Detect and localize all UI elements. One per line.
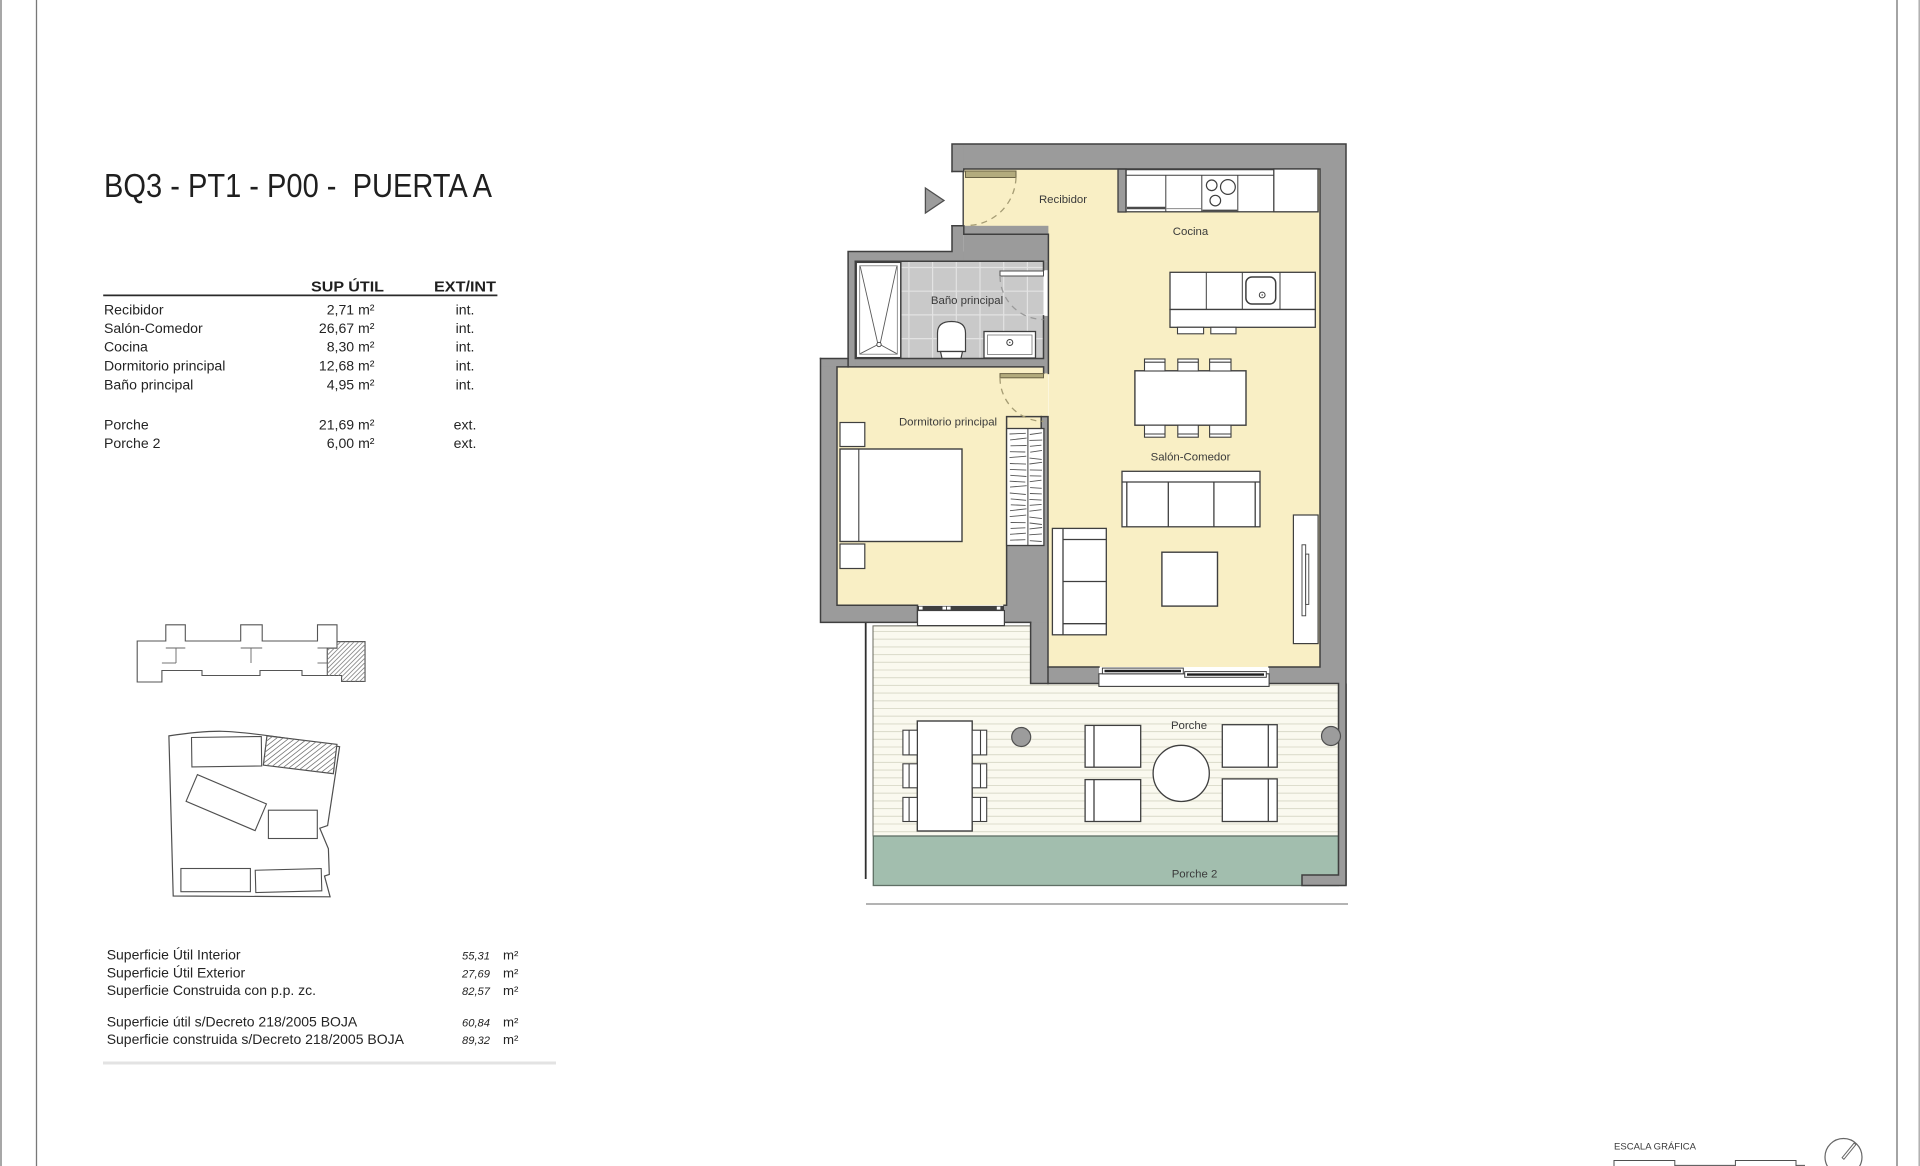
svg-text:Baño principal: Baño principal: [931, 295, 1003, 307]
svg-text:ext.: ext.: [454, 416, 477, 432]
svg-text:Porche 2: Porche 2: [1172, 869, 1218, 881]
svg-text:4,95 m²: 4,95 m²: [327, 376, 375, 392]
svg-text:Recibidor: Recibidor: [104, 301, 164, 317]
svg-text:m²: m²: [503, 983, 519, 998]
svg-text:Superficie útil s/Decreto 218/: Superficie útil s/Decreto 218/2005 BOJA: [107, 1013, 358, 1029]
svg-text:Superficie Útil Exterior: Superficie Útil Exterior: [107, 965, 246, 981]
svg-text:m²: m²: [503, 966, 519, 981]
svg-text:Dormitorio principal: Dormitorio principal: [899, 417, 997, 429]
svg-text:m²: m²: [503, 948, 519, 963]
svg-text:2,71 m²: 2,71 m²: [327, 301, 375, 317]
svg-text:Cocina: Cocina: [1173, 226, 1209, 238]
svg-text:Baño principal: Baño principal: [104, 376, 193, 392]
svg-text:Salón-Comedor: Salón-Comedor: [104, 320, 203, 336]
svg-text:int.: int.: [456, 376, 475, 392]
svg-text:Porche: Porche: [1171, 720, 1207, 732]
svg-text:27,69: 27,69: [461, 969, 490, 981]
svg-text:ext.: ext.: [454, 435, 477, 451]
svg-text:EXT/INT: EXT/INT: [434, 280, 496, 296]
svg-text:int.: int.: [456, 301, 475, 317]
svg-text:89,32: 89,32: [462, 1035, 491, 1047]
svg-text:12,68 m²: 12,68 m²: [319, 358, 375, 374]
svg-text:21,69 m²: 21,69 m²: [319, 416, 375, 432]
svg-text:ESCALA GRÁFICA: ESCALA GRÁFICA: [1614, 1141, 1697, 1152]
svg-text:26,67 m²: 26,67 m²: [319, 320, 375, 336]
svg-text:m²: m²: [503, 1014, 519, 1029]
svg-text:Dormitorio principal: Dormitorio principal: [104, 358, 225, 374]
svg-text:55,31: 55,31: [462, 951, 490, 963]
svg-text:82,57: 82,57: [462, 986, 491, 998]
svg-text:6,00 m²: 6,00 m²: [327, 435, 375, 451]
svg-text:Superficie Construida con p.p.: Superficie Construida con p.p. zc.: [107, 982, 316, 998]
svg-text:int.: int.: [456, 339, 475, 355]
svg-text:Cocina: Cocina: [104, 339, 148, 355]
svg-text:8,30 m²: 8,30 m²: [327, 339, 375, 355]
svg-text:int.: int.: [456, 320, 475, 336]
svg-text:m²: m²: [503, 1032, 519, 1047]
svg-text:Porche: Porche: [104, 416, 149, 432]
svg-text:Superficie Útil Interior: Superficie Útil Interior: [107, 947, 241, 963]
svg-text:Salón-Comedor: Salón-Comedor: [1151, 452, 1231, 464]
svg-text:Superficie construida s/Decret: Superficie construida s/Decreto 218/2005…: [107, 1031, 405, 1047]
svg-text:int.: int.: [456, 358, 475, 374]
svg-text:60,84: 60,84: [462, 1017, 490, 1029]
svg-text:Porche 2: Porche 2: [104, 435, 161, 451]
svg-text:SUP ÚTIL: SUP ÚTIL: [311, 278, 384, 296]
svg-text:BQ3 - PT1 - P00 - PUERTA A: BQ3 - PT1 - P00 - PUERTA A: [104, 167, 492, 204]
svg-text:Recibidor: Recibidor: [1039, 194, 1087, 206]
